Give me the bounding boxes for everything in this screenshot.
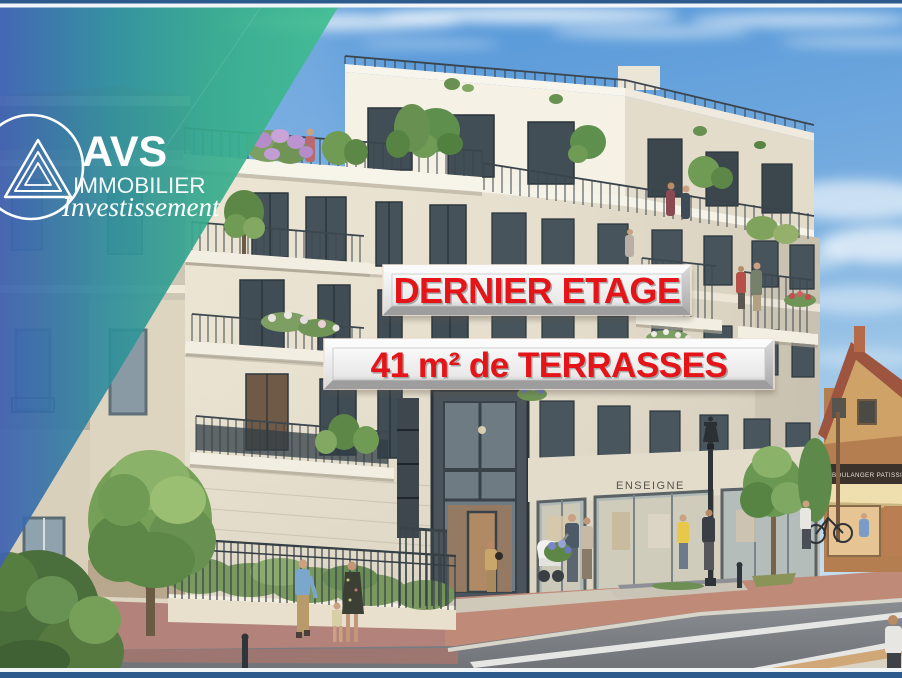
svg-text:DERNIER ETAGE: DERNIER ETAGE <box>394 270 681 311</box>
svg-text:AVS: AVS <box>82 128 167 176</box>
svg-text:ENSEIGNE: ENSEIGNE <box>616 480 685 492</box>
svg-text:BOULANGER PATISSIER: BOULANGER PATISSIER <box>832 472 902 479</box>
svg-text:41 m² de TERRASSES: 41 m² de TERRASSES <box>371 346 728 385</box>
svg-text:Investissement: Investissement <box>61 192 221 222</box>
